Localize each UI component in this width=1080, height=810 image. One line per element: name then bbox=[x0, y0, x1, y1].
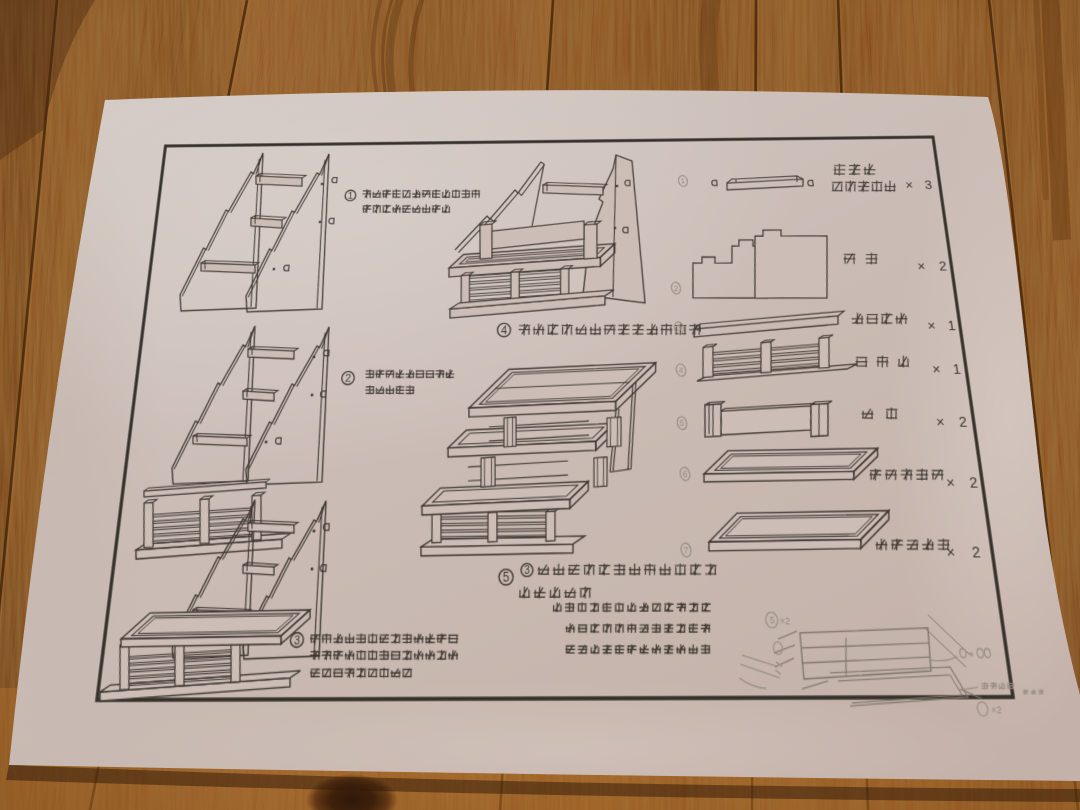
svg-text:4: 4 bbox=[678, 365, 683, 376]
svg-text:×: × bbox=[926, 317, 936, 333]
svg-text:2: 2 bbox=[674, 283, 679, 293]
svg-text:2: 2 bbox=[968, 474, 979, 492]
svg-text:2: 2 bbox=[345, 373, 352, 386]
svg-text:3: 3 bbox=[293, 633, 300, 647]
svg-text:6: 6 bbox=[682, 468, 687, 479]
svg-text:2: 2 bbox=[958, 413, 969, 430]
svg-text:3: 3 bbox=[924, 177, 934, 192]
svg-text:4: 4 bbox=[501, 325, 508, 338]
svg-text:3: 3 bbox=[524, 563, 530, 576]
svg-text:×: × bbox=[945, 543, 956, 562]
svg-text:×: × bbox=[916, 259, 926, 274]
svg-text:5: 5 bbox=[769, 614, 775, 626]
svg-text:7: 7 bbox=[683, 544, 688, 556]
svg-text:×: × bbox=[904, 177, 914, 192]
svg-text:5: 5 bbox=[503, 571, 510, 586]
svg-text:×: × bbox=[945, 474, 956, 492]
svg-text:1: 1 bbox=[681, 176, 686, 185]
svg-text:1: 1 bbox=[947, 317, 957, 333]
svg-text:2: 2 bbox=[971, 543, 982, 562]
svg-text:×: × bbox=[935, 414, 946, 431]
svg-text:×: × bbox=[931, 361, 941, 378]
svg-text:1: 1 bbox=[348, 190, 354, 200]
svg-text:3: 3 bbox=[676, 323, 681, 333]
svg-text:5: 5 bbox=[679, 418, 684, 429]
svg-text:2: 2 bbox=[938, 259, 948, 275]
svg-text:×2: ×2 bbox=[990, 703, 1002, 716]
svg-text:1: 1 bbox=[952, 361, 962, 378]
svg-text:×2: ×2 bbox=[779, 615, 790, 627]
